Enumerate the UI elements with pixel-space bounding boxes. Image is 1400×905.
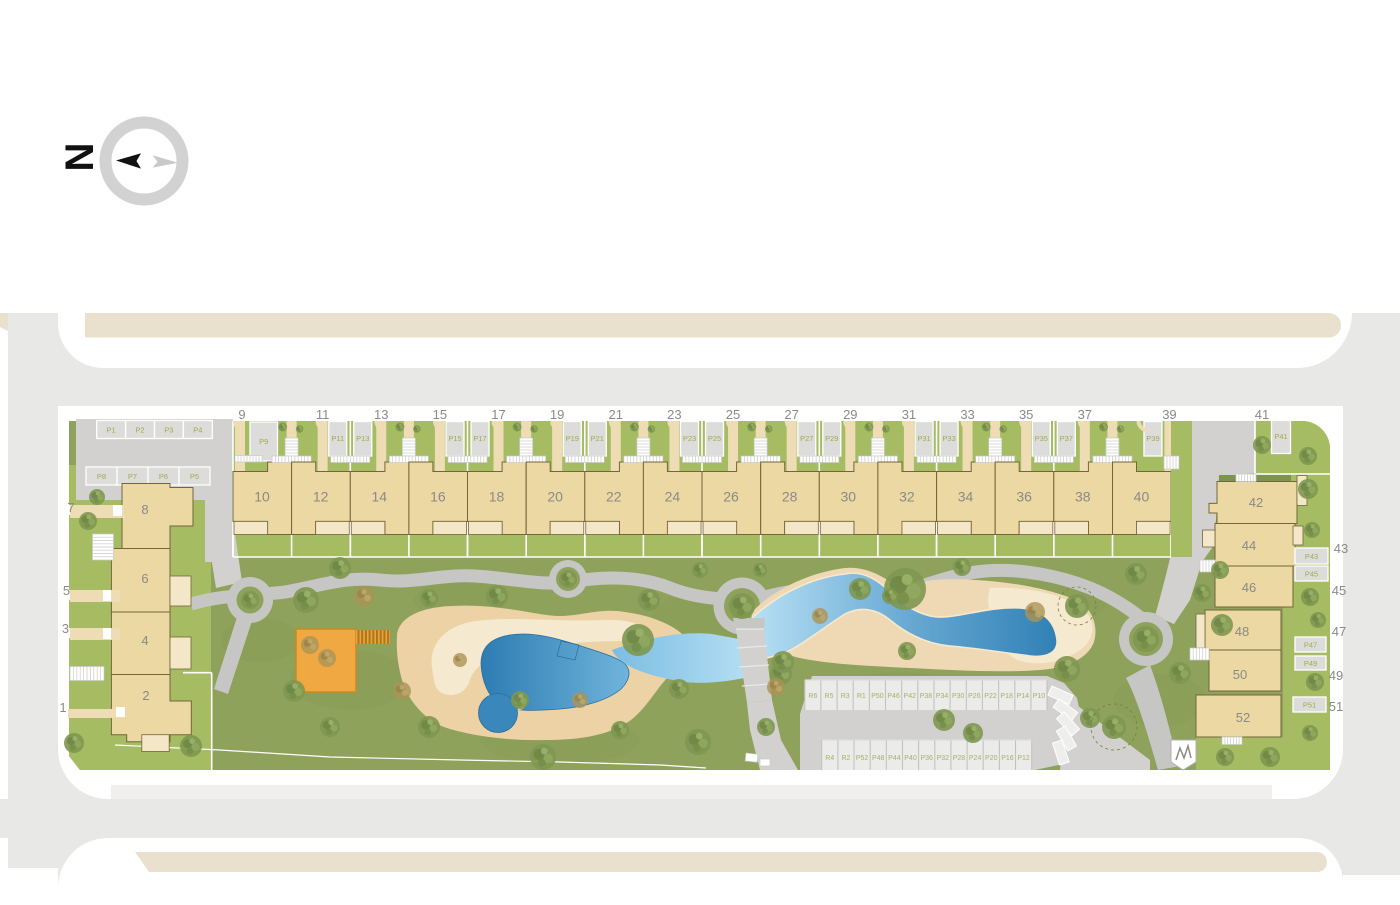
svg-text:34: 34 (958, 489, 974, 505)
svg-text:P2: P2 (135, 426, 144, 435)
svg-text:P45: P45 (1305, 570, 1318, 579)
svg-text:P13: P13 (356, 434, 369, 443)
svg-text:21: 21 (609, 407, 623, 422)
svg-text:19: 19 (550, 407, 564, 422)
svg-text:25: 25 (726, 407, 740, 422)
svg-text:20: 20 (547, 489, 563, 505)
svg-text:P52: P52 (856, 755, 869, 762)
svg-text:P36: P36 (920, 755, 933, 762)
svg-text:32: 32 (899, 489, 915, 505)
svg-text:47: 47 (1332, 624, 1346, 639)
svg-text:6: 6 (141, 571, 148, 586)
svg-text:48: 48 (1235, 624, 1249, 639)
svg-text:7: 7 (67, 500, 74, 515)
svg-text:P31: P31 (917, 434, 930, 443)
svg-text:15: 15 (433, 407, 447, 422)
svg-text:P47: P47 (1304, 641, 1317, 650)
svg-text:41: 41 (1255, 407, 1269, 422)
svg-text:28: 28 (782, 489, 798, 505)
svg-text:P12: P12 (1017, 755, 1030, 762)
svg-text:P49: P49 (1304, 659, 1317, 668)
svg-text:43: 43 (1334, 541, 1348, 556)
svg-text:11: 11 (316, 407, 330, 422)
svg-text:P22: P22 (984, 693, 997, 700)
svg-text:12: 12 (313, 489, 329, 505)
svg-text:P39: P39 (1146, 434, 1159, 443)
svg-text:23: 23 (667, 407, 681, 422)
svg-text:45: 45 (1332, 583, 1346, 598)
svg-text:P30: P30 (952, 693, 965, 700)
svg-text:P11: P11 (331, 434, 344, 443)
svg-text:R5: R5 (825, 693, 834, 700)
svg-text:2: 2 (142, 688, 149, 703)
svg-text:P1: P1 (107, 426, 116, 435)
svg-text:P51: P51 (1303, 701, 1316, 710)
svg-text:3: 3 (62, 621, 69, 636)
svg-text:4: 4 (141, 633, 148, 648)
svg-text:24: 24 (665, 489, 681, 505)
svg-text:P16: P16 (1001, 755, 1014, 762)
svg-text:33: 33 (960, 407, 974, 422)
svg-text:P44: P44 (888, 755, 901, 762)
svg-text:P18: P18 (1000, 693, 1013, 700)
svg-text:P17: P17 (473, 434, 486, 443)
svg-text:P20: P20 (985, 755, 998, 762)
svg-text:46: 46 (1242, 580, 1256, 595)
svg-text:P35: P35 (1035, 434, 1048, 443)
svg-text:P19: P19 (566, 434, 579, 443)
svg-text:22: 22 (606, 489, 622, 505)
svg-text:P29: P29 (825, 434, 838, 443)
svg-text:P24: P24 (969, 755, 982, 762)
svg-text:52: 52 (1236, 710, 1250, 725)
svg-text:50: 50 (1233, 667, 1247, 682)
svg-text:26: 26 (723, 489, 739, 505)
svg-text:P48: P48 (872, 755, 885, 762)
svg-text:39: 39 (1162, 407, 1176, 422)
svg-text:30: 30 (841, 489, 857, 505)
svg-text:P8: P8 (97, 472, 106, 481)
svg-text:5: 5 (63, 583, 70, 598)
svg-text:P14: P14 (1017, 693, 1030, 700)
svg-text:P10: P10 (1033, 693, 1046, 700)
svg-text:P50: P50 (871, 693, 884, 700)
svg-text:37: 37 (1078, 407, 1092, 422)
svg-text:27: 27 (784, 407, 798, 422)
svg-text:P40: P40 (904, 755, 917, 762)
svg-text:P25: P25 (708, 434, 721, 443)
svg-text:P3: P3 (164, 426, 173, 435)
svg-text:P41: P41 (1274, 432, 1287, 441)
svg-text:P4: P4 (193, 426, 202, 435)
svg-text:38: 38 (1075, 489, 1091, 505)
svg-text:N: N (58, 143, 102, 172)
svg-text:14: 14 (371, 489, 387, 505)
svg-text:P32: P32 (937, 755, 950, 762)
svg-text:35: 35 (1019, 407, 1033, 422)
svg-text:P5: P5 (190, 472, 199, 481)
svg-text:R4: R4 (825, 755, 834, 762)
svg-text:P23: P23 (683, 434, 696, 443)
svg-text:31: 31 (902, 407, 916, 422)
svg-text:P43: P43 (1305, 552, 1318, 561)
svg-text:R1: R1 (857, 693, 866, 700)
svg-text:49: 49 (1329, 668, 1343, 683)
svg-text:1: 1 (59, 700, 66, 715)
svg-text:P21: P21 (591, 434, 604, 443)
svg-text:P26: P26 (968, 693, 981, 700)
svg-text:P34: P34 (936, 693, 949, 700)
svg-text:44: 44 (1242, 538, 1256, 553)
svg-text:16: 16 (430, 489, 446, 505)
svg-text:P38: P38 (920, 693, 933, 700)
svg-text:P33: P33 (942, 434, 955, 443)
svg-text:P7: P7 (128, 472, 137, 481)
svg-text:P42: P42 (904, 693, 917, 700)
svg-text:P15: P15 (448, 434, 461, 443)
svg-text:36: 36 (1016, 489, 1032, 505)
svg-text:10: 10 (254, 489, 270, 505)
svg-text:17: 17 (491, 407, 505, 422)
svg-text:9: 9 (238, 407, 245, 422)
svg-text:R6: R6 (808, 693, 817, 700)
svg-text:P6: P6 (159, 472, 168, 481)
svg-text:P9: P9 (259, 437, 268, 446)
svg-text:P28: P28 (953, 755, 966, 762)
svg-text:P46: P46 (887, 693, 900, 700)
svg-text:42: 42 (1249, 495, 1263, 510)
svg-text:P27: P27 (800, 434, 813, 443)
svg-text:R2: R2 (841, 755, 850, 762)
svg-text:R3: R3 (841, 693, 850, 700)
svg-text:13: 13 (374, 407, 388, 422)
svg-text:40: 40 (1134, 489, 1150, 505)
svg-text:51: 51 (1329, 699, 1343, 714)
svg-text:18: 18 (489, 489, 505, 505)
svg-text:29: 29 (843, 407, 857, 422)
svg-text:8: 8 (141, 502, 148, 517)
svg-text:P37: P37 (1060, 434, 1073, 443)
